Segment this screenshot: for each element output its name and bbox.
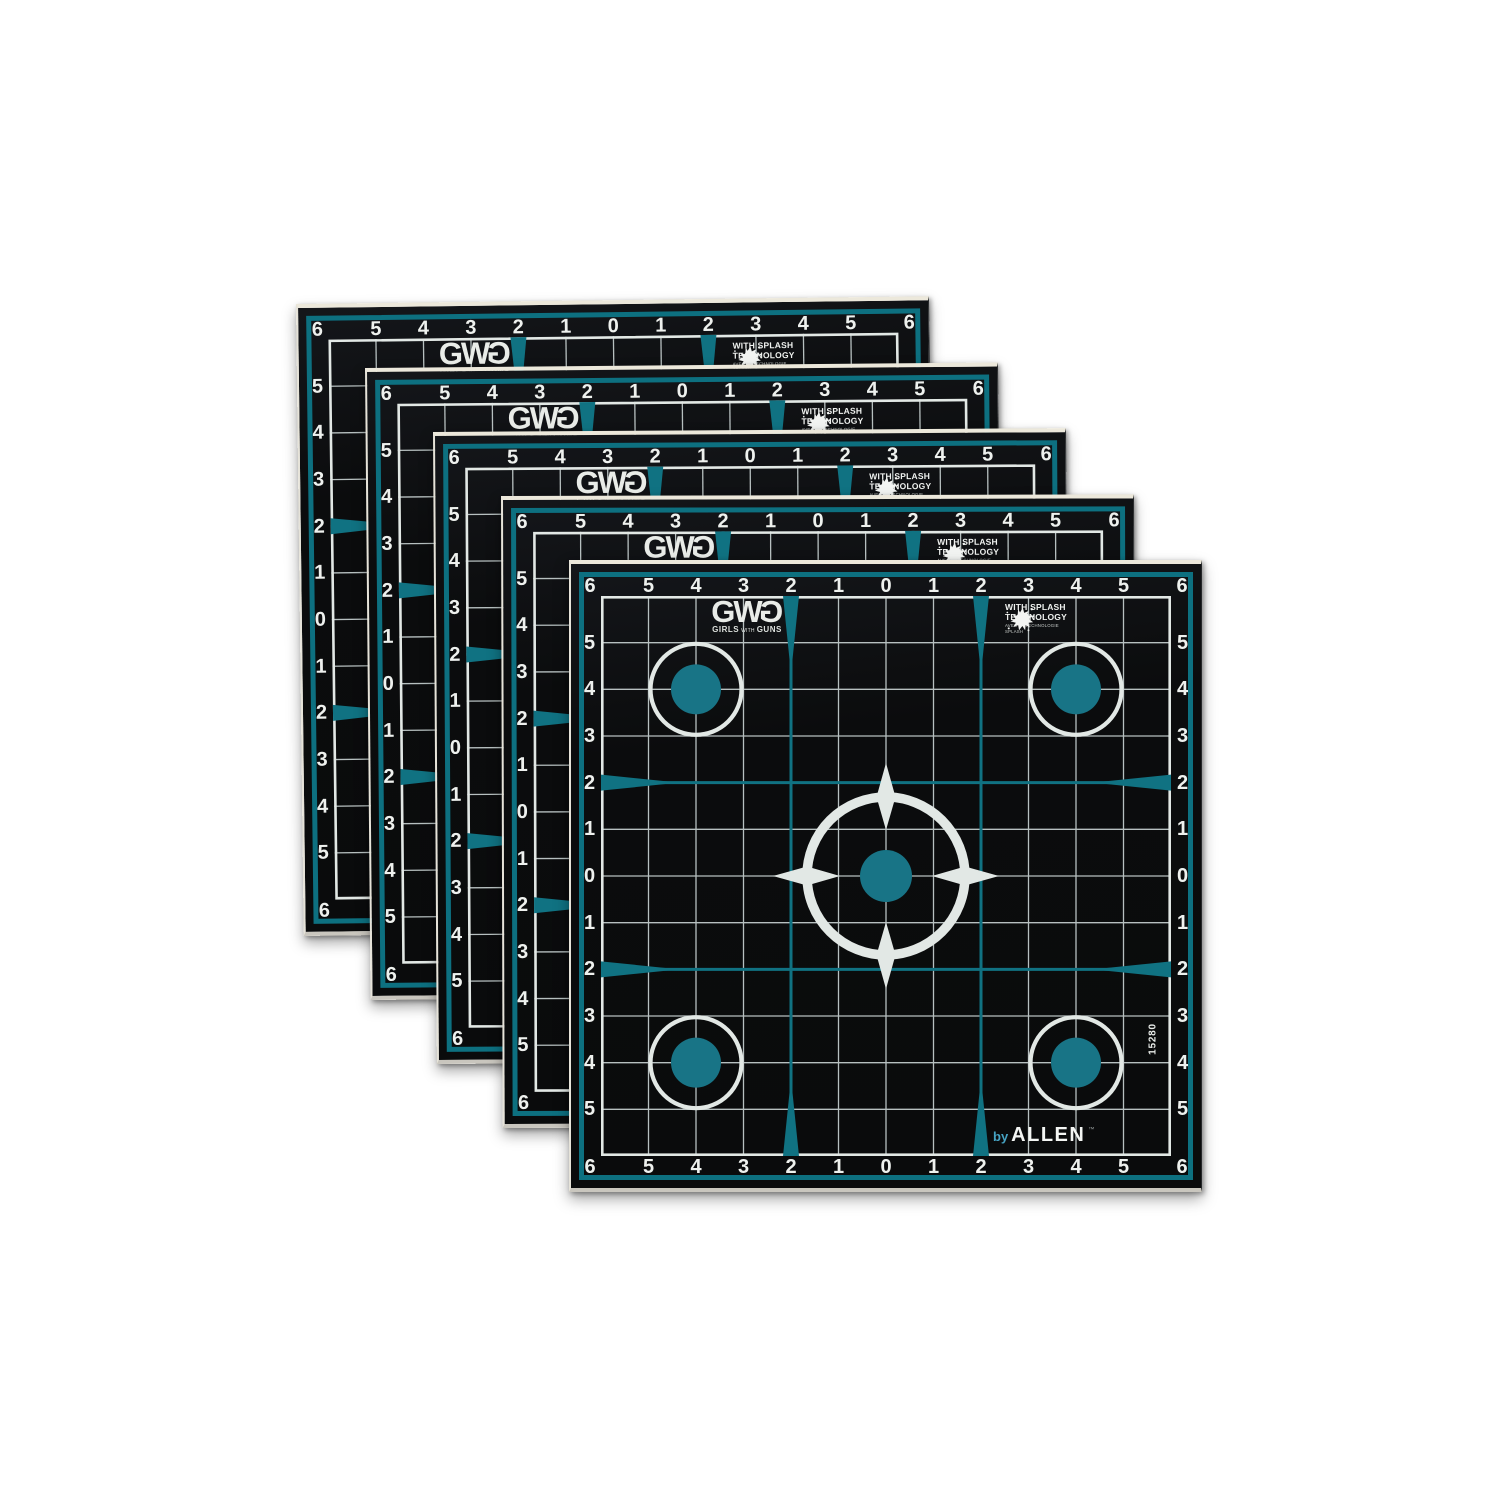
axis-number: 4 [517,989,528,1009]
axis-number: 1 [629,381,640,401]
axis-number: 1 [382,627,393,647]
paint-splash-icon [1005,604,1035,634]
axis-number: 3 [738,576,749,596]
axis-number: 4 [622,511,633,531]
axis-number: 2 [703,314,714,334]
axis-number: 5 [448,504,459,524]
axis-number: 4 [798,313,809,333]
axis-number: 2 [316,703,327,723]
axis-number: 2 [450,831,461,851]
axis-number: 4 [449,551,460,571]
axis-number: 2 [975,576,986,596]
axis-number: 1 [584,913,595,933]
axis-number: 0 [880,576,891,596]
axis-number: 4 [1070,1157,1081,1177]
axis-number: 1 [928,576,939,596]
axis-number: 2 [785,1157,796,1177]
brand-logo: by ALLEN ™ [993,1124,1094,1147]
axis-number: 6 [381,383,392,403]
axis-number: 2 [513,317,524,337]
axis-number: 3 [1177,726,1188,746]
axis-number: 2 [382,580,393,600]
axis-number: 6 [518,1092,529,1112]
axis-number: 4 [1177,1053,1188,1073]
axis-number: 3 [517,942,528,962]
axis-number: 2 [516,709,527,729]
axis-number: 1 [765,511,776,531]
axis-number: 6 [319,900,330,920]
axis-number: 5 [982,444,993,464]
logo-sub-with: WITH [741,628,755,634]
axis-number: 5 [451,971,462,991]
axis-number: 6 [1108,510,1119,530]
axis-number: 1 [833,576,844,596]
axis-number: 6 [452,1028,463,1048]
gwg-logo-text: GWG [695,596,799,628]
axis-number: 3 [584,726,595,746]
axis-number: 5 [381,440,392,460]
axis-number: 5 [845,313,856,333]
axis-number: 2 [1177,959,1188,979]
center-crosshair-bullseye [773,763,999,989]
axis-number: 4 [516,615,527,635]
axis-number: 3 [584,1006,595,1026]
axis-number: 5 [575,511,586,531]
axis-number: 3 [1023,576,1034,596]
gwg-logo: GWG GIRLSWITHGUNS [695,596,799,634]
axis-number: 5 [914,379,925,399]
axis-number: 1 [517,849,528,869]
axis-number: 0 [584,866,595,886]
item-number: 15280 [1148,1023,1159,1055]
axis-number: 1 [314,563,325,583]
axis-number: 2 [1177,773,1188,793]
axis-number: 1 [655,315,666,335]
axis-number: 5 [385,907,396,927]
axis-number: 5 [584,1099,595,1119]
axis-number: 5 [1050,510,1061,530]
axis-number: 4 [487,382,498,402]
axis-number: 4 [317,796,328,816]
axis-number: 1 [724,380,735,400]
axis-number: 3 [887,445,898,465]
axis-number: 4 [418,318,429,338]
axis-number: 5 [370,318,381,338]
axis-number: 3 [1177,1006,1188,1026]
axis-number: 6 [584,576,595,596]
brand-by-prefix: by [993,1129,1008,1144]
axis-number: 5 [439,383,450,403]
axis-number: 3 [750,314,761,334]
axis-number: 5 [1118,1157,1129,1177]
axis-number: 2 [383,767,394,787]
axis-number: 2 [975,1157,986,1177]
axis-number: 1 [833,1157,844,1177]
axis-number: 5 [584,633,595,653]
axis-number: 6 [449,447,460,467]
axis-number: 4 [381,487,392,507]
axis-number: 3 [465,317,476,337]
axis-number: 2 [785,576,796,596]
logo-sub-girls: GIRLS [712,625,739,634]
axis-number: 1 [1177,819,1188,839]
axis-number: 3 [819,379,830,399]
axis-number: 1 [860,511,871,531]
axis-number: 0 [677,381,688,401]
axis-number: 1 [792,445,803,465]
axis-number: 1 [315,656,326,676]
axis-number: 3 [384,814,395,834]
axis-number: 3 [670,511,681,531]
brand-name: ALLEN [1011,1124,1085,1147]
axis-number: 2 [584,773,595,793]
axis-number: 4 [451,924,462,944]
axis-number: 0 [450,738,461,758]
axis-number: 5 [318,843,329,863]
axis-number: 3 [316,750,327,770]
axis-number: 3 [516,662,527,682]
target-stack-scene: GWG GIRLSWITHGUNS WITH SPLASH TECHNOLOGY… [0,0,1500,1500]
axis-number: 4 [312,423,323,443]
axis-number: 4 [584,1053,595,1073]
axis-number: 3 [313,470,324,490]
axis-number: 0 [745,446,756,466]
axis-number: 4 [867,379,878,399]
target-grid: GWG GIRLSWITHGUNS WITH SPLASH TECHNOLOGY… [601,596,1171,1156]
axis-number: 1 [584,819,595,839]
axis-number: 5 [312,376,323,396]
brand-trademark: ™ [1088,1127,1094,1133]
axis-number: 4 [555,447,566,467]
axis-number: 0 [517,802,528,822]
axis-number: 2 [717,511,728,531]
axis-number: 1 [450,784,461,804]
axis-number: 1 [928,1157,939,1177]
axis-number: 0 [880,1157,891,1177]
axis-number: 4 [1070,576,1081,596]
gwg-logo-text: GWG [627,531,731,563]
axis-number: 3 [451,878,462,898]
axis-number: 4 [384,860,395,880]
splash-technology-block: WITH SPLASH TECHNOLOGY AVEC LA TECHNOLOG… [1005,603,1067,635]
axis-number: 2 [772,380,783,400]
axis-number: 3 [955,510,966,530]
axis-number: 0 [608,316,619,336]
axis-number: 5 [1177,1099,1188,1119]
axis-number: 0 [812,511,823,531]
axis-number: 5 [643,576,654,596]
axis-number: 5 [1177,633,1188,653]
axis-number: 6 [584,1157,595,1177]
axis-number: 5 [507,447,518,467]
axis-number: 2 [907,510,918,530]
axis-number: 4 [935,444,946,464]
axis-number: 0 [315,610,326,630]
axis-number: 5 [517,1035,528,1055]
axis-number: 3 [602,446,613,466]
axis-number: 5 [1118,576,1129,596]
axis-number: 6 [1176,576,1187,596]
axis-number: 5 [643,1157,654,1177]
axis-number: 2 [584,959,595,979]
axis-number: 2 [449,644,460,664]
axis-number: 4 [690,1157,701,1177]
axis-number: 1 [450,691,461,711]
axis-number: 3 [381,534,392,554]
axis-number: 5 [516,569,527,589]
axis-number: 0 [383,674,394,694]
axis-number: 6 [386,964,397,984]
grid-graphics [601,596,1171,1156]
axis-number: 6 [312,319,323,339]
axis-number: 1 [517,755,528,775]
axis-number: 2 [517,895,528,915]
axis-number: 3 [534,382,545,402]
axis-number: 6 [904,312,915,332]
axis-number: 4 [1177,679,1188,699]
axis-number: 1 [1177,913,1188,933]
axis-number: 2 [840,445,851,465]
axis-number: 2 [650,446,661,466]
axis-number: 3 [738,1157,749,1177]
axis-number: 2 [314,516,325,536]
axis-number: 3 [1023,1157,1034,1177]
gwg-logo-text: GWG [559,467,663,499]
axis-number: 4 [584,679,595,699]
axis-number: 6 [1041,444,1052,464]
axis-number: 2 [582,382,593,402]
axis-number: 6 [1176,1157,1187,1177]
axis-number: 1 [560,316,571,336]
axis-number: 6 [973,378,984,398]
axis-number: 4 [690,576,701,596]
gwg-logo-text: GWG [491,402,595,435]
axis-number: 0 [1177,866,1188,886]
axis-number: 4 [1002,510,1013,530]
axis-number: 3 [449,598,460,618]
target-sheet: GWG GIRLSWITHGUNS WITH SPLASH TECHNOLOGY… [569,560,1202,1192]
axis-number: 1 [383,720,394,740]
axis-number: 1 [697,446,708,466]
product-photo: { "scene": { "background_color": "#fffff… [0,0,1500,1500]
axis-number: 6 [516,511,527,531]
